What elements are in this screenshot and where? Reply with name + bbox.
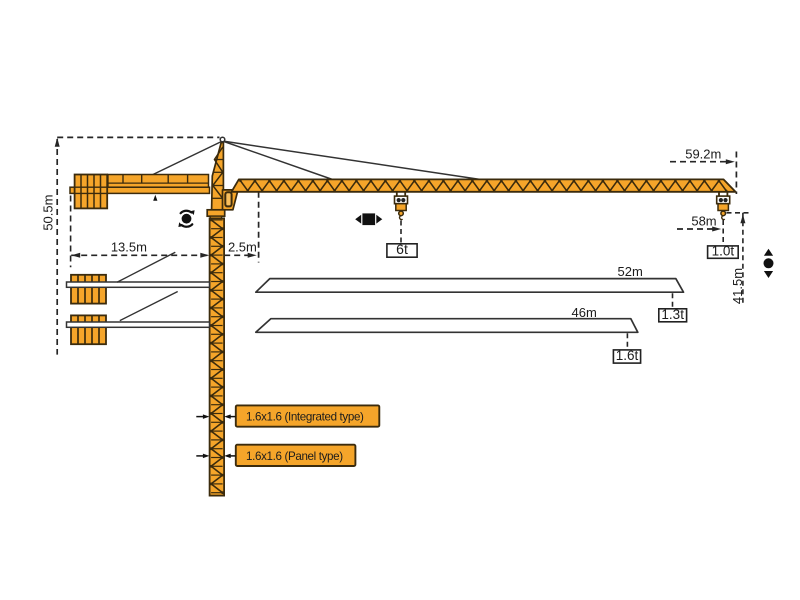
svg-text:59.2m: 59.2m xyxy=(685,147,721,162)
svg-text:1.0t: 1.0t xyxy=(712,243,735,258)
svg-text:6t: 6t xyxy=(396,241,408,257)
svg-text:58m: 58m xyxy=(691,213,716,228)
svg-text:1.6t: 1.6t xyxy=(616,348,639,363)
svg-text:46m: 46m xyxy=(572,305,597,320)
svg-text:1.6x1.6 (Panel type): 1.6x1.6 (Panel type) xyxy=(246,450,343,463)
svg-text:50.5m: 50.5m xyxy=(40,195,55,231)
svg-text:41.5m: 41.5m xyxy=(730,268,745,304)
svg-text:1.6x1.6 (Integrated type): 1.6x1.6 (Integrated type) xyxy=(246,411,364,424)
svg-text:2.5m: 2.5m xyxy=(228,239,257,254)
svg-text:1.3t: 1.3t xyxy=(661,307,684,322)
svg-text:13.5m: 13.5m xyxy=(111,239,147,254)
svg-text:52m: 52m xyxy=(618,264,643,279)
